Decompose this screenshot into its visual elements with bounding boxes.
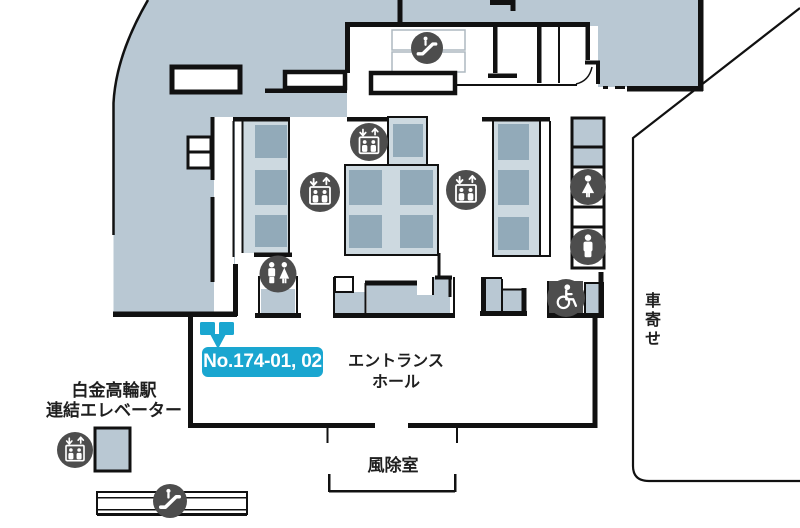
vestibule-label: 風除室: [333, 451, 453, 476]
station-elevator-label: 白金高輪駅 連結エレベーター: [25, 381, 203, 421]
escalator-icon: [411, 32, 443, 64]
elevator-icon: [300, 172, 340, 212]
floor-plan-svg: [0, 0, 800, 528]
station-elevator-label-line1: 白金高輪駅: [72, 381, 157, 400]
entrance-hall-label: エントランス ホール: [321, 351, 471, 393]
elevator-icon: [446, 170, 486, 210]
womens-restroom-icon: [570, 169, 606, 205]
wheelchair-accessible-icon: [547, 279, 585, 317]
entrance-hall-label-line2: ホール: [372, 374, 420, 391]
elevator-icon: [57, 432, 93, 468]
badge-marker: [200, 322, 234, 349]
mens-restroom-icon: [570, 229, 606, 265]
station-elevator-label-line2: 連結エレベーター: [46, 401, 182, 420]
elevator-icon: [350, 123, 388, 161]
entrance-hall-label-line1: エントランス: [348, 353, 444, 370]
floor-plan: No.174-01, 02 エントランス ホール 風除室 白金高輪駅 連結エレベ…: [0, 0, 800, 528]
driveway-label: 車寄せ: [630, 292, 662, 372]
room-number-badge[interactable]: No.174-01, 02: [202, 347, 323, 377]
mens-womens-restroom-icon: [260, 256, 297, 293]
escalator-icon: [153, 484, 187, 518]
